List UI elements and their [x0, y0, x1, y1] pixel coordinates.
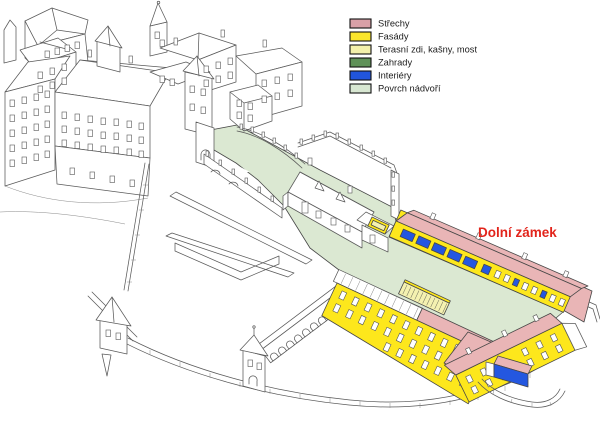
legend-label-interiery: Interiéry: [378, 71, 412, 81]
legend-item-interiery: Interiéry: [350, 71, 412, 81]
legend-swatch-povrch: [350, 84, 371, 93]
legend-swatch-zahrady: [350, 58, 371, 67]
legend-item-zahrady: Zahrady: [350, 58, 412, 68]
legend-swatch-interiery: [350, 71, 371, 80]
legend-swatch-terasni: [350, 45, 371, 54]
legend-swatch-strechy: [350, 19, 371, 28]
legend-item-fasady: Fasády: [350, 32, 409, 42]
arcade-tower: [240, 326, 268, 392]
lower-castle-label: Dolní zámek: [478, 225, 557, 240]
legend-item-povrch: Povrch nádvoří: [350, 84, 441, 94]
legend-label-zahrady: Zahrady: [378, 58, 412, 68]
legend-label-povrch: Povrch nádvoří: [378, 84, 441, 94]
legend-item-terasni: Terasní zdi, kašny, most: [350, 45, 477, 55]
legend-label-fasady: Fasády: [378, 32, 409, 42]
site-drawing: Střechy Fasády Terasní zdi, kašny, most …: [0, 0, 600, 434]
legend-item-strechy: Střechy: [350, 19, 410, 29]
castle-site-plan: Střechy Fasády Terasní zdi, kašny, most …: [0, 0, 600, 434]
legend-label-strechy: Střechy: [378, 19, 410, 29]
legend: Střechy Fasády Terasní zdi, kašny, most …: [350, 19, 477, 94]
legend-swatch-fasady: [350, 32, 371, 41]
legend-label-terasni: Terasní zdi, kašny, most: [378, 45, 477, 55]
